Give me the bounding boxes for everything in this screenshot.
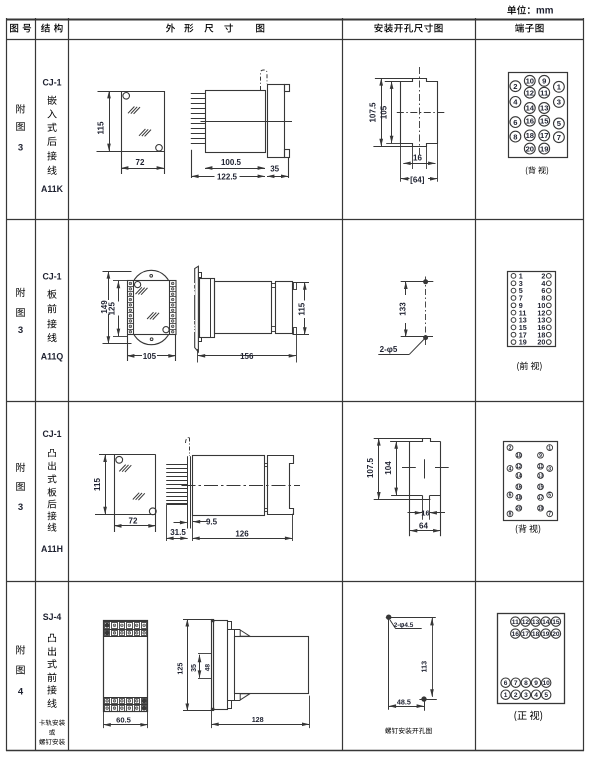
svg-text:11: 11 xyxy=(538,464,544,470)
svg-text:4: 4 xyxy=(534,692,538,699)
svg-text:107.5: 107.5 xyxy=(366,457,375,478)
svg-text:19: 19 xyxy=(519,338,527,347)
svg-text:64: 64 xyxy=(419,521,428,530)
svg-text:3: 3 xyxy=(557,98,561,107)
svg-text:A11H: A11H xyxy=(41,544,63,554)
svg-text:3: 3 xyxy=(18,325,23,336)
svg-text:31.5: 31.5 xyxy=(170,528,186,537)
svg-text:16: 16 xyxy=(512,631,520,638)
svg-text:122.5: 122.5 xyxy=(217,172,238,181)
svg-text:7: 7 xyxy=(514,680,518,687)
svg-text:8: 8 xyxy=(509,512,512,518)
svg-text:14: 14 xyxy=(516,473,522,479)
svg-text:15: 15 xyxy=(538,485,544,491)
svg-text:14: 14 xyxy=(542,619,550,626)
svg-text:6: 6 xyxy=(513,118,517,127)
svg-text:2: 2 xyxy=(514,692,518,699)
svg-text:9.5: 9.5 xyxy=(206,518,218,527)
svg-text:5: 5 xyxy=(548,493,551,499)
svg-text:113: 113 xyxy=(420,661,429,673)
svg-text:16: 16 xyxy=(413,153,422,162)
svg-text:15: 15 xyxy=(552,619,560,626)
svg-text:105: 105 xyxy=(143,352,157,361)
svg-text:CJ-1: CJ-1 xyxy=(42,271,61,281)
svg-text:17: 17 xyxy=(540,131,548,140)
svg-text:2-φ5: 2-φ5 xyxy=(380,344,398,354)
svg-text:CJ-1: CJ-1 xyxy=(42,429,61,439)
svg-text:115: 115 xyxy=(97,121,106,134)
svg-text:72: 72 xyxy=(129,516,138,525)
svg-text:A11K: A11K xyxy=(41,184,64,194)
svg-text:3: 3 xyxy=(18,502,23,513)
svg-text:20: 20 xyxy=(537,338,545,347)
svg-text:3: 3 xyxy=(524,692,528,699)
svg-text:7: 7 xyxy=(557,133,561,142)
svg-text:4: 4 xyxy=(18,687,24,698)
svg-text:10: 10 xyxy=(543,680,551,687)
svg-text:35: 35 xyxy=(270,165,279,174)
svg-text:10: 10 xyxy=(516,453,522,459)
svg-text:17: 17 xyxy=(522,631,530,638)
svg-text:104: 104 xyxy=(384,461,393,475)
svg-text:A11Q: A11Q xyxy=(41,351,64,361)
svg-text:[64]: [64] xyxy=(410,175,425,184)
svg-text:19: 19 xyxy=(538,506,544,512)
svg-text:3: 3 xyxy=(548,466,551,472)
svg-text:12: 12 xyxy=(516,464,522,470)
svg-text:13: 13 xyxy=(538,473,544,479)
svg-text:6: 6 xyxy=(509,493,512,499)
svg-text:126: 126 xyxy=(235,529,249,538)
svg-text:CJ-1: CJ-1 xyxy=(42,78,61,88)
svg-text:133: 133 xyxy=(399,302,408,316)
svg-text:60.5: 60.5 xyxy=(116,715,132,724)
svg-text:105: 105 xyxy=(380,105,389,119)
svg-text:10: 10 xyxy=(526,77,534,86)
svg-text:100.5: 100.5 xyxy=(221,158,242,167)
svg-text:mm: mm xyxy=(536,6,554,17)
svg-text:11: 11 xyxy=(540,88,549,97)
svg-text:17: 17 xyxy=(538,495,544,501)
svg-text:48.5: 48.5 xyxy=(397,698,411,707)
svg-text:4: 4 xyxy=(509,466,512,472)
svg-text:128: 128 xyxy=(252,715,264,724)
svg-text:9: 9 xyxy=(542,77,546,86)
svg-text:1: 1 xyxy=(548,445,551,451)
svg-text:13: 13 xyxy=(540,104,548,113)
svg-text:16: 16 xyxy=(421,509,429,518)
svg-text:9: 9 xyxy=(539,453,542,459)
svg-text:107.5: 107.5 xyxy=(368,102,377,123)
svg-text:2: 2 xyxy=(509,445,512,451)
svg-text:13: 13 xyxy=(532,619,540,626)
svg-text:12: 12 xyxy=(526,88,534,97)
svg-text:6: 6 xyxy=(504,680,508,687)
svg-text:SJ-4: SJ-4 xyxy=(43,612,62,622)
svg-text:20: 20 xyxy=(552,631,560,638)
svg-text:5: 5 xyxy=(544,692,548,699)
svg-text:115: 115 xyxy=(93,477,102,490)
svg-text:16: 16 xyxy=(526,116,534,125)
svg-text:72: 72 xyxy=(136,158,145,167)
svg-text:18: 18 xyxy=(526,131,534,140)
svg-text:35: 35 xyxy=(191,664,198,672)
svg-text:14: 14 xyxy=(526,104,535,113)
svg-text:125: 125 xyxy=(108,301,117,315)
svg-text:20: 20 xyxy=(516,506,522,512)
svg-text:20: 20 xyxy=(526,144,534,153)
svg-text:18: 18 xyxy=(516,495,522,501)
svg-text:12: 12 xyxy=(522,619,530,626)
svg-text:18: 18 xyxy=(532,631,540,638)
svg-text:156: 156 xyxy=(240,352,254,361)
svg-text:8: 8 xyxy=(513,132,517,141)
svg-text:7: 7 xyxy=(548,512,551,518)
svg-text:8: 8 xyxy=(524,680,528,687)
svg-text:2: 2 xyxy=(513,82,517,91)
svg-text:19: 19 xyxy=(540,144,548,153)
svg-text:1: 1 xyxy=(504,692,508,699)
svg-text:3: 3 xyxy=(18,143,23,154)
svg-text:19: 19 xyxy=(542,631,550,638)
svg-text:11: 11 xyxy=(512,619,519,626)
svg-text:125: 125 xyxy=(175,663,184,675)
svg-text:9: 9 xyxy=(534,680,538,687)
svg-text:16: 16 xyxy=(516,485,522,491)
svg-text:48: 48 xyxy=(205,664,212,672)
svg-text:15: 15 xyxy=(540,116,549,125)
svg-text:2-φ4.5: 2-φ4.5 xyxy=(394,622,414,629)
svg-text:115: 115 xyxy=(298,302,307,315)
